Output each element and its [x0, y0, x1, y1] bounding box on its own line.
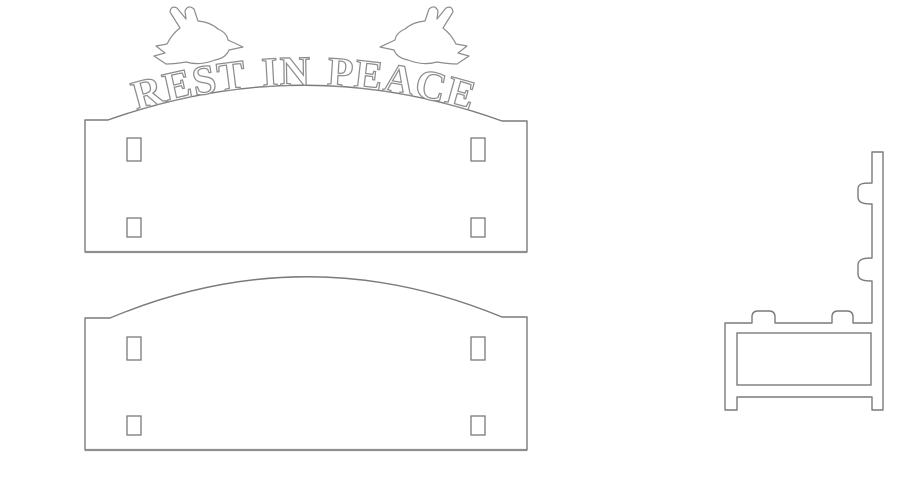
- front-panel-slot-bottom-right: [471, 416, 485, 435]
- laser-cut-template-drawing: REST IN PEACE: [0, 0, 916, 491]
- front-panel-slot-top-left: [127, 337, 141, 360]
- side-profile: [725, 152, 883, 410]
- front-panel-slot-top-right: [471, 337, 485, 360]
- back-panel-slot-bottom-right: [471, 218, 485, 237]
- side-profile-window: [737, 333, 871, 385]
- front-panel-slot-bottom-left: [127, 416, 141, 435]
- back-panel-slot-top-left: [127, 138, 141, 161]
- front-panel-outline: [85, 277, 527, 450]
- front-panel: [85, 277, 527, 450]
- back-panel-slot-bottom-left: [127, 218, 141, 237]
- back-panel: REST IN PEACE: [85, 7, 527, 252]
- drawing-svg: REST IN PEACE: [0, 0, 916, 491]
- dove-right-icon: [380, 7, 469, 64]
- back-panel-slot-top-right: [471, 138, 485, 161]
